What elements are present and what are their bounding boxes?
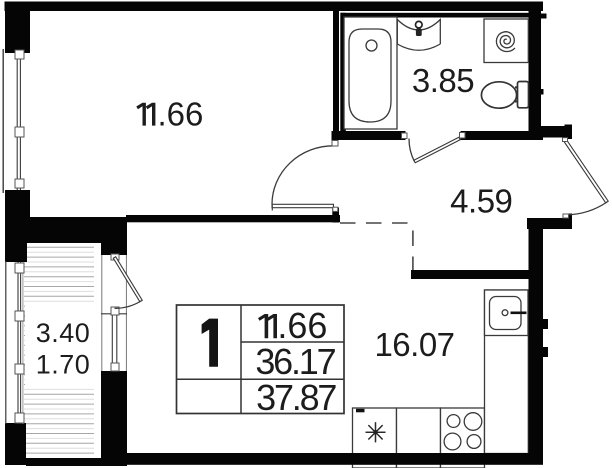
svg-text:3.40: 3.40 <box>36 318 91 348</box>
svg-text:3.85: 3.85 <box>412 62 474 99</box>
svg-text:.66: .66 <box>277 305 327 346</box>
svg-text:16.07: 16.07 <box>374 326 454 363</box>
svg-text:37.87: 37.87 <box>256 377 336 418</box>
svg-text:1.70: 1.70 <box>36 349 91 379</box>
svg-text:.66: .66 <box>158 95 204 132</box>
svg-text:4.59: 4.59 <box>450 182 512 219</box>
